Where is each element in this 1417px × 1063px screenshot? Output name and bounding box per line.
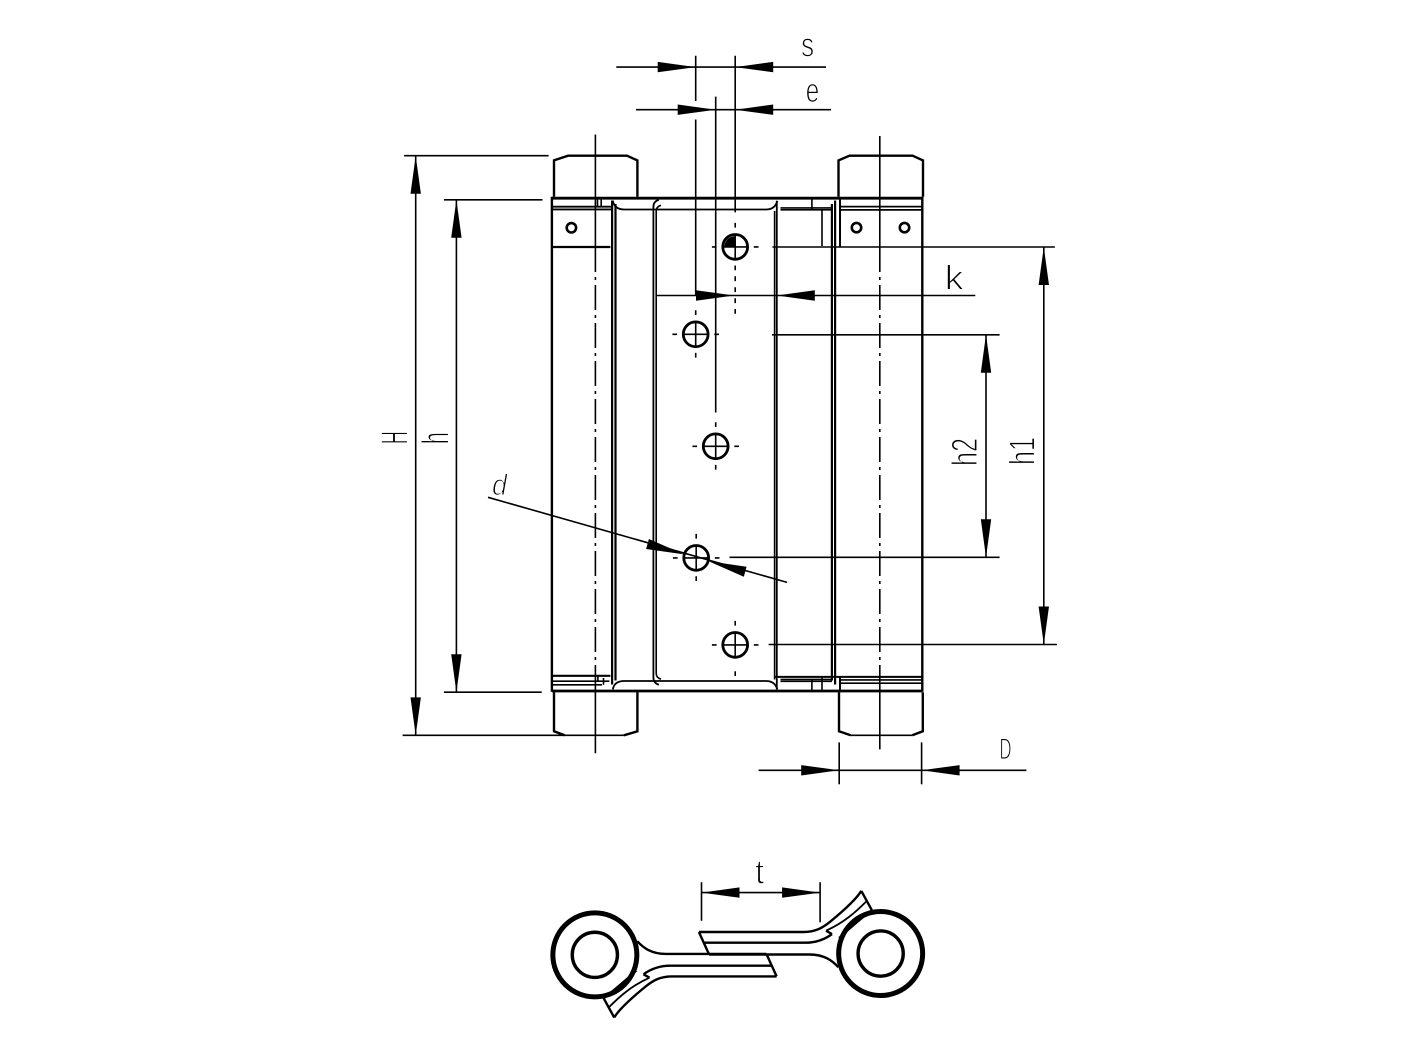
svg-text:s: s <box>801 26 814 64</box>
svg-text:h: h <box>415 432 457 444</box>
svg-text:H: H <box>375 431 417 444</box>
svg-text:d: d <box>492 469 508 502</box>
svg-text:t: t <box>755 854 765 892</box>
svg-text:h1: h1 <box>1002 437 1043 465</box>
svg-text:e: e <box>806 72 820 110</box>
svg-text:k: k <box>945 260 965 298</box>
svg-text:h2: h2 <box>944 438 985 466</box>
svg-text:D: D <box>1000 733 1012 766</box>
